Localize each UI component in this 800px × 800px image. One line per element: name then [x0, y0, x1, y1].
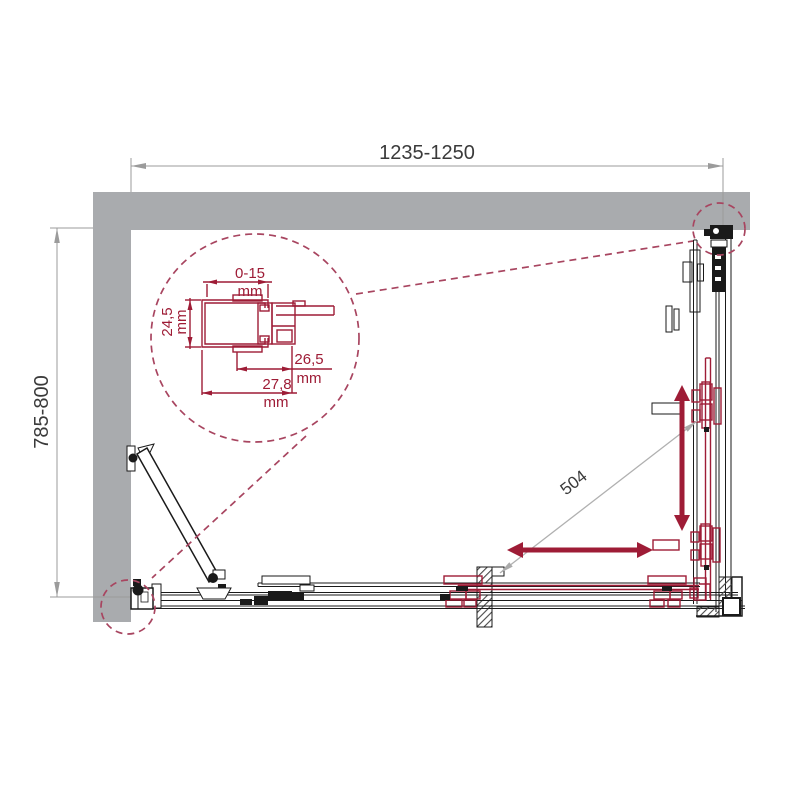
diagram-canvas: 1235-1250 785-800 [0, 0, 800, 800]
width-outer-unit: mm [264, 394, 289, 411]
width-label: 1235-1250 [379, 142, 475, 164]
depth-label: 785-800 [31, 375, 53, 448]
width-outer-label: 27,8 [262, 376, 291, 393]
arm-foot [197, 588, 231, 599]
width-inner-unit: mm [297, 370, 322, 387]
width-inner-label: 26,5 [294, 351, 323, 368]
technical-diagram: 1235-1250 785-800 [0, 0, 800, 800]
height-unit: mm [173, 310, 190, 335]
adjustment-unit: mm [238, 283, 263, 300]
left-wall [93, 192, 131, 622]
adjustment-label: 0-15 [235, 265, 265, 282]
top-wall [93, 192, 750, 230]
